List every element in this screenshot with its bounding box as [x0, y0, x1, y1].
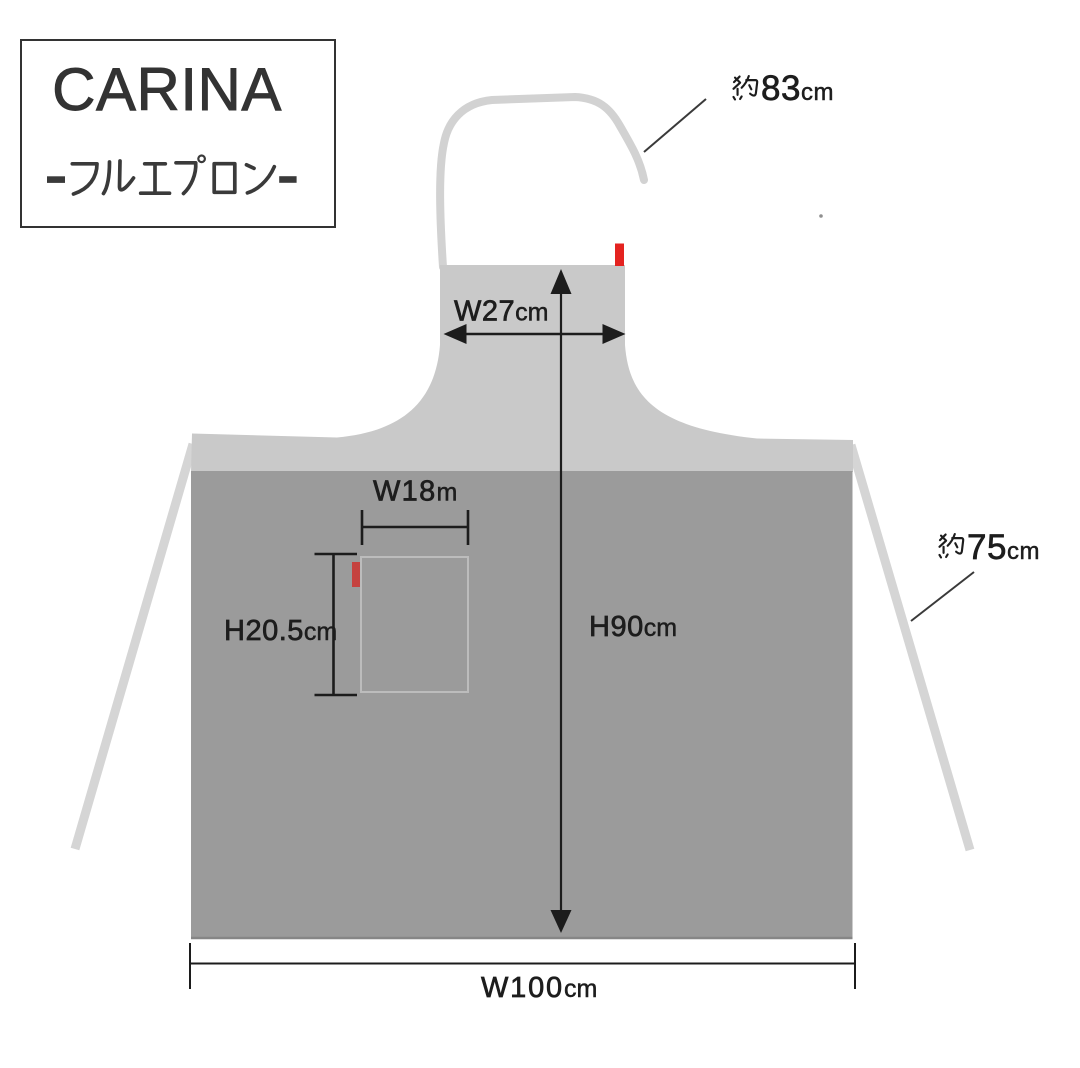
svg-text:CARINA: CARINA	[52, 56, 282, 123]
svg-text:H20.5cm: H20.5cm	[224, 615, 337, 647]
svg-text:W18m: W18m	[373, 476, 457, 508]
svg-text:W100cm: W100cm	[481, 972, 597, 1004]
svg-text:W27cm: W27cm	[454, 296, 548, 328]
svg-text:H90cm: H90cm	[589, 611, 677, 643]
